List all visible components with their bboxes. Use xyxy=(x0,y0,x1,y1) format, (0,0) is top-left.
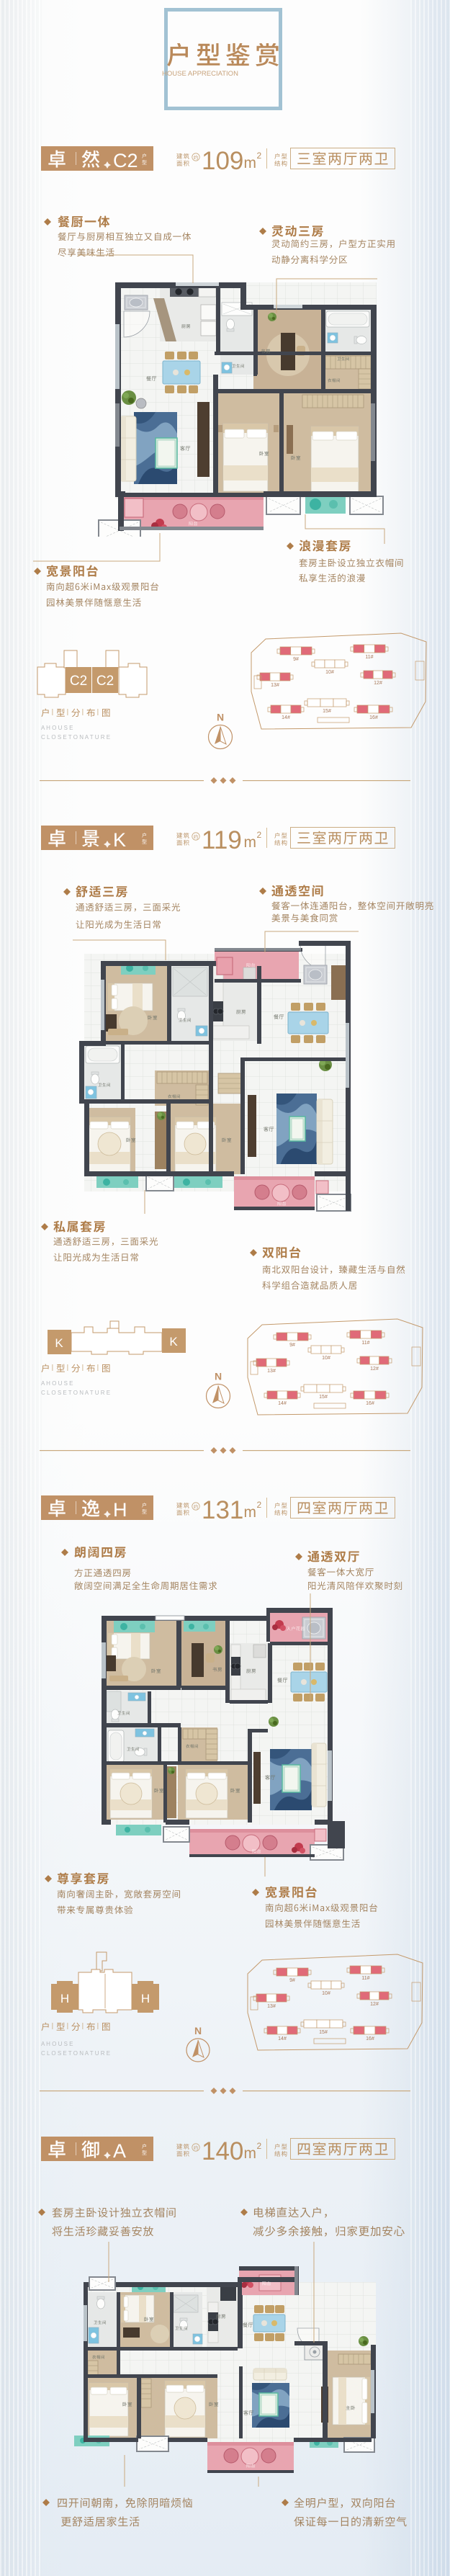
svg-text:N: N xyxy=(215,1371,222,1382)
svg-text:N: N xyxy=(217,712,224,723)
svg-text:N: N xyxy=(194,2025,202,2036)
